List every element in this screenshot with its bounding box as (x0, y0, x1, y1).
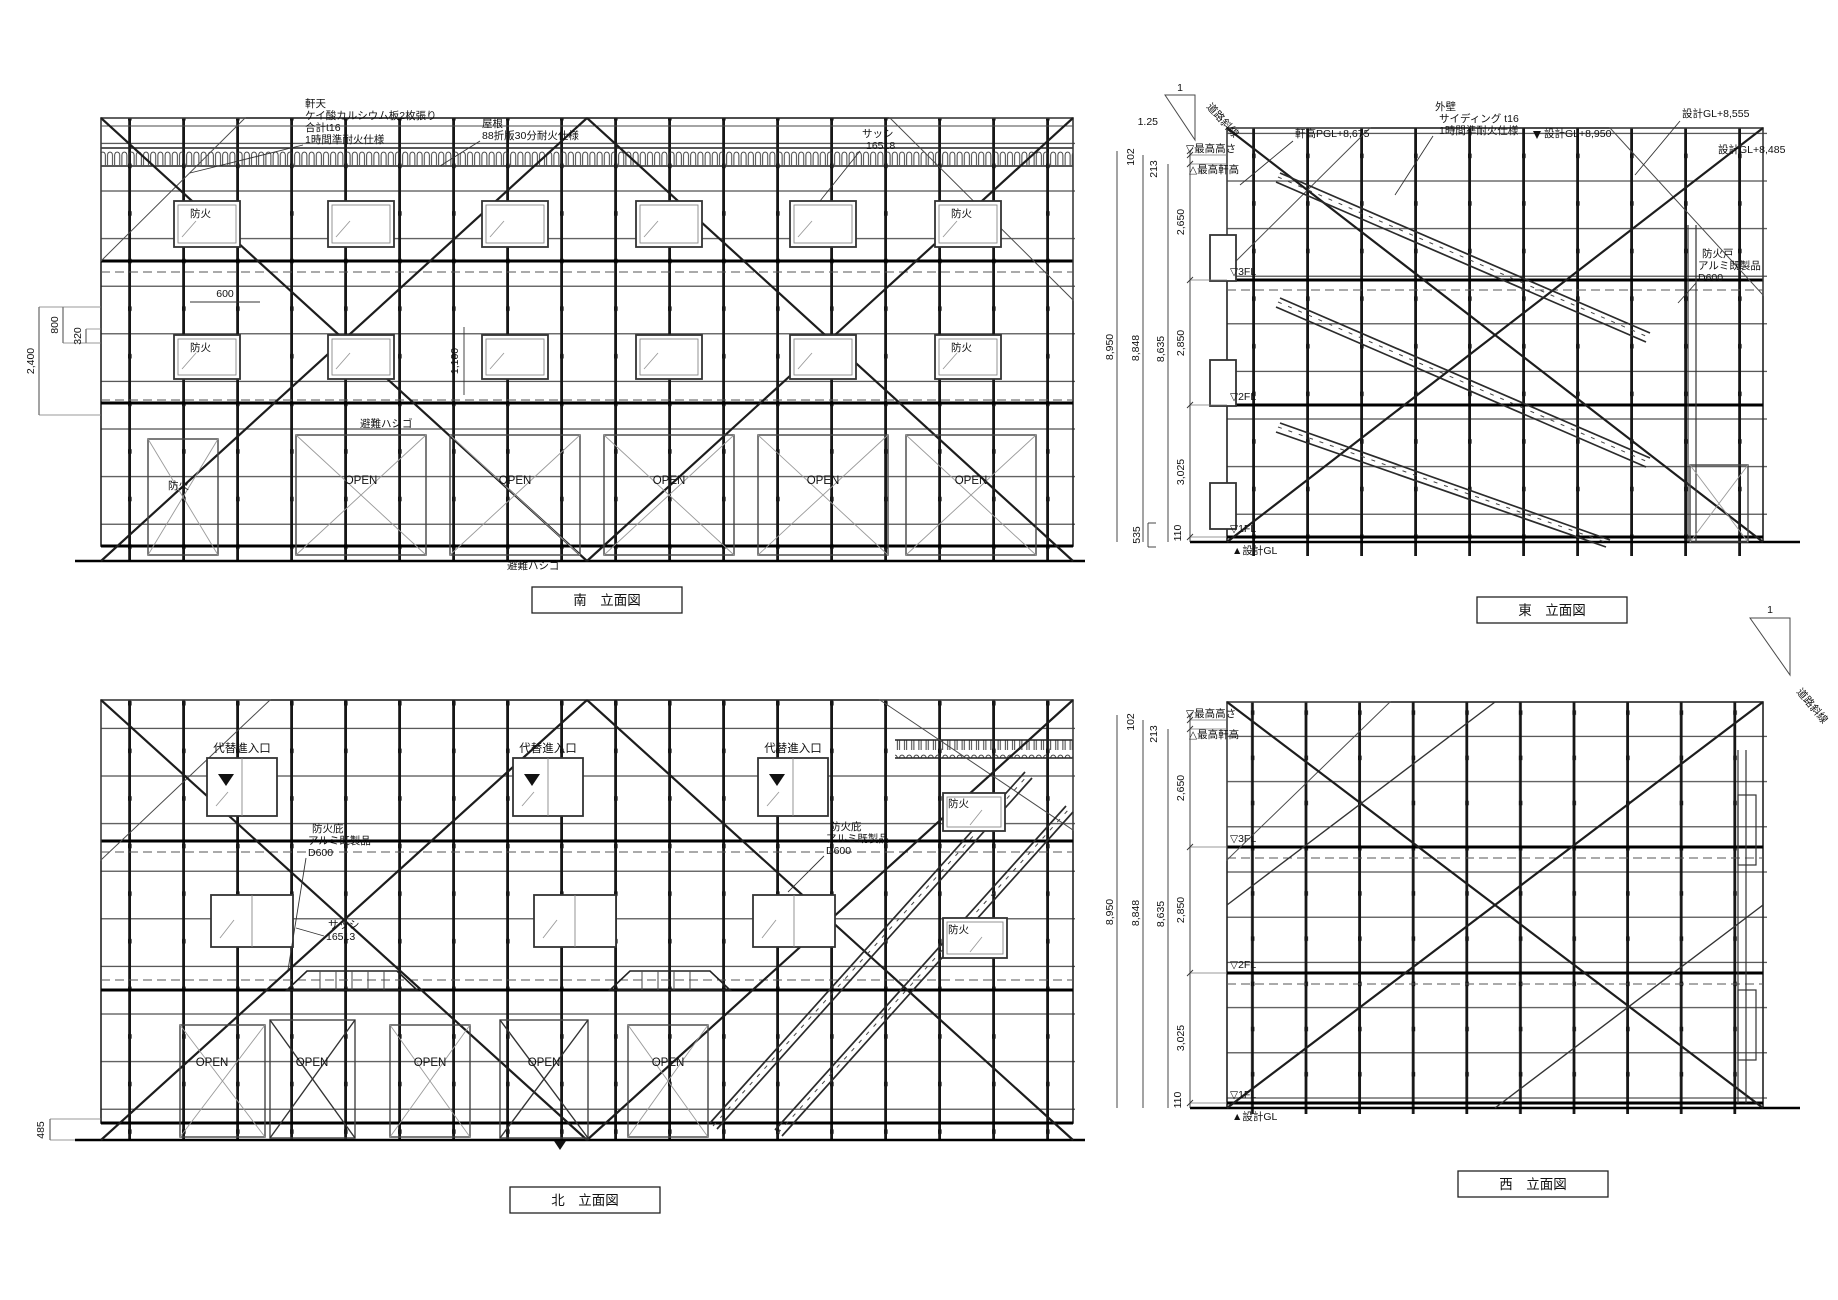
slope-rise: 1 (1177, 82, 1183, 94)
level-label: ▽2FL (1230, 959, 1256, 971)
note-line: 1時間準耐火仕様 (1439, 124, 1519, 137)
escape-hatch-label: 避難ハシゴ (507, 559, 560, 572)
entry-label: 代替進入口 (764, 741, 822, 755)
dim-1100: 1,100 (449, 348, 461, 374)
east-road-slope: 1 1.25 道路斜線 (1138, 82, 1242, 141)
section-marker (554, 1141, 566, 1150)
dim-800: 800 (49, 316, 61, 334)
north-roof-band (895, 740, 1073, 758)
dim-label: 8,950 (1104, 899, 1116, 925)
west-title: 西 立面図 (1458, 1171, 1608, 1197)
note-line: ケイ酸カルシウム板2枚張り (305, 109, 437, 122)
fire-label: 防火 (948, 797, 969, 810)
note-line: D600 (308, 847, 333, 859)
dim-label: 110 (1172, 1091, 1184, 1108)
entry-window (513, 758, 583, 816)
note-line: 防火庇 (312, 822, 344, 835)
north-dim-485: 485 (35, 1119, 101, 1140)
fire-label: 防火 (190, 207, 211, 220)
window (211, 895, 293, 947)
dim-label: 2,850 (1175, 330, 1187, 356)
dim-label: 2,650 (1175, 209, 1187, 235)
dim-label: 213 (1148, 160, 1160, 178)
south-roof-band (101, 148, 1073, 166)
window (534, 895, 616, 947)
road-slope-label: 道路斜線 (1204, 100, 1242, 140)
open-label: OPEN (955, 475, 988, 487)
slope-run: 1.25 (1138, 116, 1159, 128)
east-side-windows (1210, 235, 1236, 529)
note-line: D600 (826, 845, 851, 857)
note-line: アルミ既製品 (308, 834, 371, 847)
dim-label: 2,850 (1175, 897, 1187, 923)
window (328, 201, 394, 247)
level-label: ▲設計GL (1232, 544, 1278, 557)
note-line: サッシ (328, 919, 360, 931)
open-label: OPEN (653, 475, 686, 487)
open-label: OPEN (807, 475, 840, 487)
dim-label: 485 (35, 1121, 47, 1139)
entry-window (758, 758, 828, 816)
entry-window (207, 758, 277, 816)
level-label: ▽最高高さ (1186, 707, 1236, 720)
dim-label: 2,650 (1175, 775, 1187, 801)
level-label: ▽3FL (1230, 266, 1256, 278)
dim-label: 102 (1125, 148, 1137, 166)
open-label: OPEN (196, 1057, 229, 1069)
note-line: 防火戸 (1702, 247, 1734, 260)
west-elevation-drawing: 1 道路斜線 ▽最高高さ △最高軒高 ▽3FL ▽2FL ▽1FL ▲設計GL … (1090, 600, 1838, 1240)
level-label: ▽1FL (1230, 523, 1256, 535)
fire-label: 防火 (948, 923, 969, 936)
south-elevation-drawing: 防火 防火 防火 防火 防火 OPEN OPEN OPEN OPEN OPEN … (20, 95, 1085, 630)
road-slope-label: 道路斜線 (1794, 686, 1831, 727)
note-line: サイディング t16 (1439, 112, 1519, 125)
entry-label: 代替進入口 (213, 741, 271, 755)
note-line: 防火庇 (830, 820, 862, 833)
dim-label: 110 (1172, 524, 1184, 541)
dim-label: 3,025 (1175, 1025, 1187, 1051)
level-label: ▽最高高さ (1186, 142, 1236, 155)
note-line: 合計t16 (305, 121, 341, 134)
dim-2400: 2,400 (25, 348, 37, 374)
window (636, 335, 702, 379)
north-elevation-drawing: 代替進入口 代替進入口 代替進入口 OPEN OPEN OPEN OPEN (20, 680, 1085, 1240)
dim-label: 213 (1148, 725, 1160, 743)
level-label: △最高軒高 (1189, 163, 1239, 176)
west-dimension-chain: 102 213 2,650 2,850 3,025 110 8,950 8,84… (1104, 712, 1193, 1108)
open-label: OPEN (652, 1057, 685, 1069)
note-line: 屋根 (482, 117, 503, 130)
window (790, 201, 856, 247)
dim-label: 102 (1125, 713, 1137, 731)
window (328, 335, 394, 379)
note-line: アルミ既製品 (826, 832, 889, 845)
level-label: 軒高PGL+8,675 (1295, 127, 1370, 140)
level-label: ▲設計GL (1232, 1110, 1278, 1123)
dim-label: 535 (1131, 526, 1143, 544)
note-line: 16513 (326, 931, 355, 943)
note-line: 16518 (866, 140, 895, 152)
fire-label: 防火 (190, 341, 211, 354)
dim-label: 3,025 (1175, 459, 1187, 485)
north-title-text: 北 立面図 (551, 1193, 619, 1208)
open-label: OPEN (499, 475, 532, 487)
window (482, 201, 548, 247)
north-title: 北 立面図 (510, 1187, 660, 1213)
window (790, 335, 856, 379)
west-title-text: 西 立面図 (1499, 1177, 1567, 1192)
note-line: 外壁 (1435, 100, 1457, 113)
east-gl8950-note: 設計GL+8,950 (1533, 127, 1612, 140)
south-title: 南 立面図 (532, 587, 682, 613)
dim-label: 8,848 (1130, 900, 1142, 926)
dim-label: 8,635 (1155, 336, 1167, 362)
note-line: 軒天 (305, 98, 326, 110)
slope-rise: 1 (1767, 604, 1773, 616)
note-line: 88折版30分耐火仕様 (482, 129, 579, 142)
east-gl8485-label: 設計GL+8,485 (1718, 143, 1786, 156)
note-line: D600 (1698, 272, 1723, 284)
east-scaffold-grid (1190, 128, 1800, 556)
note-line: 1時間準耐火仕様 (305, 133, 385, 146)
east-dimension-chain: 102 213 2,650 2,850 3,025 110 535 8,950 … (1104, 148, 1193, 547)
fire-label: 防火 (168, 479, 189, 492)
note-line: アルミ既製品 (1698, 259, 1761, 272)
window (482, 335, 548, 379)
open-label: OPEN (528, 1057, 561, 1069)
entry-label: 代替進入口 (519, 741, 577, 755)
south-title-text: 南 立面図 (573, 593, 641, 608)
window (636, 201, 702, 247)
open-label: OPEN (345, 475, 378, 487)
dim-320: 320 (72, 327, 84, 345)
dim-label: 8,848 (1130, 335, 1142, 361)
fire-label: 防火 (951, 207, 972, 220)
open-label: OPEN (414, 1057, 447, 1069)
level-label: ▽1FL (1230, 1089, 1256, 1101)
note-line: サッシ (862, 128, 894, 140)
level-label: ▽2FL (1230, 391, 1256, 403)
dim-label: 8,635 (1155, 901, 1167, 927)
east-elevation-drawing: 外壁 サイディング t16 1時間準耐火仕様 軒高PGL+8,675 設計GL+… (1090, 85, 1838, 645)
level-label: 設計GL+8,950 (1544, 127, 1612, 140)
level-label: 設計GL+8,555 (1682, 107, 1750, 120)
dim-600: 600 (216, 288, 234, 300)
escape-hatch-label: 避難ハシゴ (360, 417, 413, 430)
fire-label: 防火 (951, 341, 972, 354)
open-label: OPEN (296, 1057, 329, 1069)
level-label: ▽3FL (1230, 833, 1256, 845)
window (753, 895, 835, 947)
dim-label: 8,950 (1104, 334, 1116, 360)
drawing-sheet: 防火 防火 防火 防火 防火 OPEN OPEN OPEN OPEN OPEN … (0, 0, 1838, 1300)
west-scaffold-grid (1190, 702, 1800, 1114)
level-label: △最高軒高 (1189, 728, 1239, 741)
